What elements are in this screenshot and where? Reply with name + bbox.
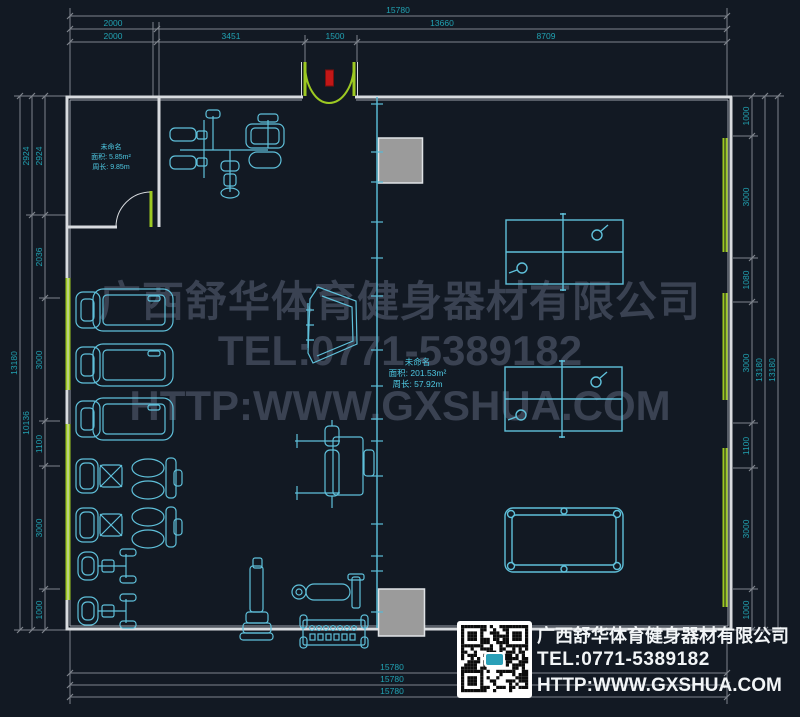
room-name: 未命名 — [340, 357, 495, 368]
dim-right-in-4: 3000 — [741, 354, 751, 373]
dim-top-r3-4: 8709 — [537, 31, 556, 41]
multi-station-gym-icon — [170, 110, 284, 198]
dim-right-in-5: 1100 — [741, 437, 751, 455]
dim-right-total-1: 13180 — [754, 358, 764, 382]
pool-table-icon — [505, 508, 623, 572]
dim-right-total-2: 13180 — [767, 358, 777, 382]
bench-press-icon — [295, 420, 374, 508]
dim-left-in-3: 3000 — [34, 351, 44, 370]
dim-left-in-4: 1100 — [34, 435, 44, 453]
dim-left-in-6: 1000 — [34, 601, 44, 620]
column-bottom — [379, 589, 425, 636]
dim-left-mid-1: 2924 — [21, 147, 31, 166]
dim-top-r3-1: 2000 — [104, 31, 123, 41]
contact-company: 广西舒华体育健身器材有限公司 — [537, 622, 789, 648]
room-perimeter: 周长: 57.92m — [340, 379, 495, 390]
contact-url: HTTP:WWW.GXSHUA.COM — [537, 675, 782, 697]
dim-bottom-1: 15780 — [380, 662, 404, 672]
dim-top-r3-3: 1500 — [326, 31, 345, 41]
dim-left-total: 13180 — [9, 351, 19, 375]
room-door-arc — [116, 192, 151, 227]
dim-top-r3-2: 3451 — [222, 31, 241, 41]
room-name: 未命名 — [61, 143, 161, 153]
dim-left-in-1: 2924 — [34, 147, 44, 166]
situp-board-icon — [306, 287, 357, 363]
qr-code — [457, 621, 532, 698]
dim-top-r2-2: 13660 — [430, 18, 454, 28]
room-area: 面积: 201.53m² — [340, 368, 495, 379]
dim-left-in-2: 2036 — [34, 248, 44, 267]
dim-left-in-5: 3000 — [34, 519, 44, 538]
dim-right-in-6: 3000 — [741, 520, 751, 539]
dim-top-r2-1: 2000 — [104, 18, 123, 28]
dumbbell-rack-icon — [300, 615, 368, 648]
cad-floor-plan: 广西舒华体育健身器材有限公司 TEL:0771-5389182 HTTP:WWW… — [0, 0, 800, 717]
entrance-double-door — [305, 62, 354, 103]
dim-left-mid-2: 10136 — [21, 411, 31, 435]
room-label-small: 未命名 面积: 5.85m² 周长: 9.85m — [61, 143, 161, 173]
dim-right-in-7: 1000 — [741, 601, 751, 620]
roller-bench-icon — [292, 574, 364, 608]
dim-right-in-2: 3000 — [741, 188, 751, 207]
room-label-main: 未命名 面积: 201.53m² 周长: 57.92m — [340, 357, 495, 390]
dim-right-in-3: 1080 — [741, 271, 751, 290]
room-area: 面积: 5.85m² — [61, 153, 161, 163]
dim-top-total: 15780 — [386, 5, 410, 15]
dim-bottom-2: 15780 — [380, 674, 404, 684]
column-top — [379, 138, 423, 183]
room-perimeter: 周长: 9.85m — [61, 163, 161, 173]
dim-right-in-1: 1000 — [741, 107, 751, 126]
contact-tel: TEL:0771-5389182 — [537, 649, 710, 671]
dim-bottom-3: 15780 — [380, 686, 404, 696]
qr-logo — [486, 654, 503, 665]
red-entrance-marker — [326, 70, 334, 86]
